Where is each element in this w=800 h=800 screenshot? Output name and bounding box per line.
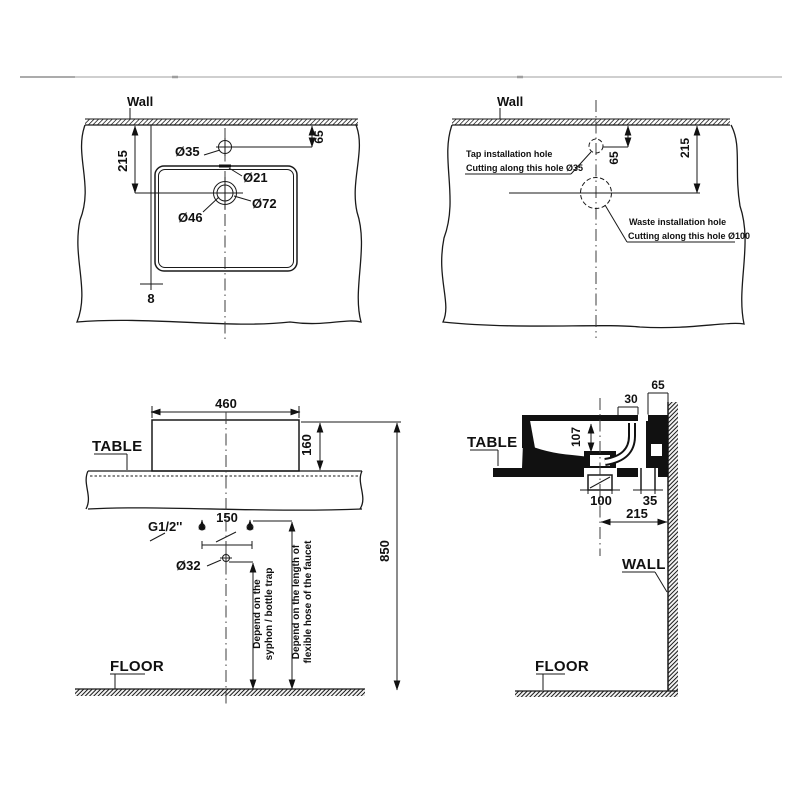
syphon-note-line1: Depend on the xyxy=(252,579,263,649)
supply-thread-label: G1/2'' xyxy=(148,519,182,534)
waste-note-line2: Cutting along this hole Ø100 xyxy=(628,231,750,241)
syphon-note-line2: syphon / bottle trap xyxy=(264,568,275,661)
wall-hatch-band xyxy=(85,119,358,125)
dim-215-label: 215 xyxy=(626,506,648,521)
dim-65-label: 65 xyxy=(607,151,621,165)
drain-symbol xyxy=(214,177,237,209)
dim-215-label: 215 xyxy=(115,150,130,172)
hose-note-line1: Depend on the length of xyxy=(291,544,302,659)
floor-hatch-band xyxy=(515,691,678,697)
wall-label: WALL xyxy=(622,556,666,573)
technical-drawing-page: Wall 215 8 Ø35 65 xyxy=(0,0,800,800)
dim-150-label: 150 xyxy=(216,510,238,525)
dim-215-label: 215 xyxy=(678,138,692,158)
table-slab xyxy=(86,471,363,510)
washbasin-installation-drawing: Wall 215 8 Ø35 65 xyxy=(0,0,800,800)
hose-note-line2: flexible hose of the faucet xyxy=(303,540,314,663)
tap-hole-symbol xyxy=(204,138,234,156)
wall-label: Wall xyxy=(127,94,153,109)
tap-note-line1: Tap installation hole xyxy=(466,149,552,159)
front-elevation-view: 460 160 TABLE 850 G1/2'' xyxy=(75,396,401,706)
side-section-view: 65 30 107 TABLE xyxy=(467,378,678,697)
left-supply-point xyxy=(199,520,205,530)
table-label: TABLE xyxy=(92,438,142,455)
syphon-note: Depend on the syphon / bottle trap xyxy=(229,562,275,689)
dim-65-label: 65 xyxy=(651,378,665,392)
dim-65-label: 65 xyxy=(312,130,326,144)
dia-72-label: Ø72 xyxy=(252,196,277,211)
dia-35-label: Ø35 xyxy=(175,144,200,159)
dia-21-label: Ø21 xyxy=(243,170,268,185)
wall-hatch-band xyxy=(452,119,730,125)
dim-65-bracket xyxy=(648,393,668,415)
floor-hatch-band xyxy=(75,689,365,696)
tap-installation-note: Tap installation hole Cutting along this… xyxy=(465,149,591,174)
dim-100-label: 100 xyxy=(590,493,612,508)
dim-30-bracket xyxy=(618,407,638,416)
plan-view-hole-dimensions: Wall 215 8 Ø35 65 xyxy=(77,94,361,340)
waste-note-line1: Waste installation hole xyxy=(629,217,726,227)
basin-section xyxy=(522,415,668,469)
wall-label: Wall xyxy=(497,94,523,109)
dim-160-label: 160 xyxy=(299,434,314,456)
dim-30-label: 30 xyxy=(624,392,638,406)
dia-32-label: Ø32 xyxy=(176,558,201,573)
table-label: TABLE xyxy=(467,434,517,451)
floor-label: FLOOR xyxy=(535,658,589,675)
dim-107-label: 107 xyxy=(569,427,583,447)
dim-8-label: 8 xyxy=(147,291,154,306)
dim-460-label: 460 xyxy=(215,396,237,411)
tap-note-line2: Cutting along this hole Ø35 xyxy=(466,163,583,173)
right-supply-point xyxy=(247,520,253,530)
wall-hatch-band xyxy=(668,402,678,697)
floor-label: FLOOR xyxy=(110,658,164,675)
dia-46-label: Ø46 xyxy=(178,210,203,225)
waste-installation-note: Waste installation hole Cutting along th… xyxy=(605,205,750,242)
dim-850-label: 850 xyxy=(377,540,392,562)
plan-view-cutting-holes: Wall 65 215 Tap installation hole Cuttin… xyxy=(442,94,750,338)
